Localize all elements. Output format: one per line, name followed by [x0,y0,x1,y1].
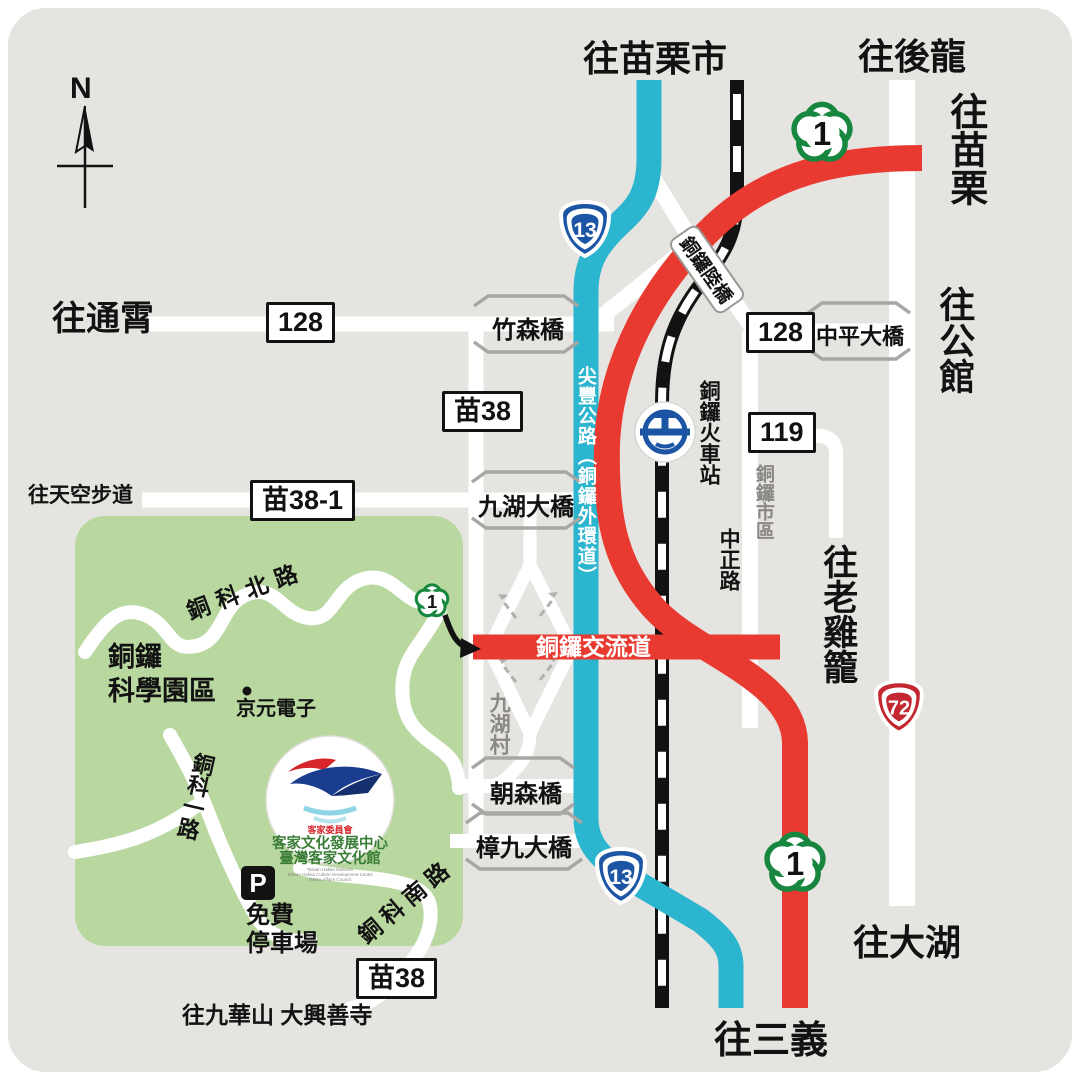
dest-gongguan: 往公館 [934,286,975,394]
dest-jiuhuashan-temple: 往九華山 大興善寺 [182,1002,372,1028]
train-station-label: 銅鑼火車站 [696,380,720,485]
bridge-zhongping: 中平大橋 [816,319,904,351]
parking-p-glyph: P [249,868,266,898]
route1-shield-park: 1 [416,585,447,616]
hakka-museum-logo: 客家委員會 客家文化發展中心 臺灣客家文化館 Taiwan Hakka Muse… [266,736,394,882]
parking-label-line2: 停車場 [246,930,318,958]
bridge-zhangjiu: 樟九大橋 [476,828,572,863]
route13-number: 13 [609,866,632,889]
route1-number: 1 [813,115,831,152]
logo-line2: 臺灣客家文化館 [279,849,381,867]
logo-council: 客家委員會 [306,824,353,835]
logo-line1: 客家文化發展中心 [271,834,388,852]
sign-119: 119 [748,412,816,453]
route1-number: 1 [786,845,804,882]
bridge-zhusen: 竹森橋 [492,310,564,345]
sign-128-east: 128 [746,312,815,353]
train-station-icon [635,402,695,462]
logo-en3: Hakka Affairs Council [309,877,352,882]
kyec-location-dot [243,687,252,696]
sign-m38-south: 苗38 [356,958,437,999]
dest-tongxiao: 往通霄 [52,300,154,339]
route1-shield-bottom: 1 [767,834,823,889]
dest-miaoli: 往苗栗 [942,92,986,206]
sign-m38-1: 苗38-1 [250,480,355,521]
jiuhu-village-label: 九湖村 [486,692,510,755]
jianfeng-road-label: 尖豐公路（銅鑼外環道） [574,366,596,586]
route13-number: 13 [573,219,596,242]
route1-shield-top: 1 [794,104,850,159]
interchange-label: 銅鑼交流道 [536,634,651,660]
downtown-label: 銅鑼市區 [752,464,774,540]
science-park-label-line1: 銅鑼 [108,642,162,673]
zhongzheng-road-label: 中正路 [716,528,740,591]
sign-128-west: 128 [266,302,335,343]
dest-sanyi: 往三義 [714,1020,828,1064]
bridge-jiuhu: 九湖大橋 [478,487,574,522]
dest-houlong: 往後龍 [858,36,966,77]
science-park-label-line2: 科學園區 [108,676,216,707]
dest-dahu: 往大湖 [853,922,961,963]
route72-number: 72 [888,698,910,720]
map-canvas: 客家委員會 客家文化發展中心 臺灣客家文化館 Taiwan Hakka Muse… [0,0,1080,1080]
parking-icon: P [241,866,275,900]
dest-miaoli-city: 往苗栗市 [583,38,727,79]
dest-laojilong: 往老雞籠 [817,544,857,684]
compass-north-label: N [70,72,92,107]
compass-rose [57,106,113,208]
bridge-chaosen: 朝森橋 [490,774,562,809]
kyec-label: 京元電子 [236,698,316,721]
dest-skywalk: 往天空步道 [28,484,133,508]
map-graphics: 客家委員會 客家文化發展中心 臺灣客家文化館 Taiwan Hakka Muse… [0,0,1080,1080]
route1-number: 1 [427,591,437,612]
sign-m38-north: 苗38 [442,391,523,432]
parking-label-line1: 免費 [246,902,294,930]
